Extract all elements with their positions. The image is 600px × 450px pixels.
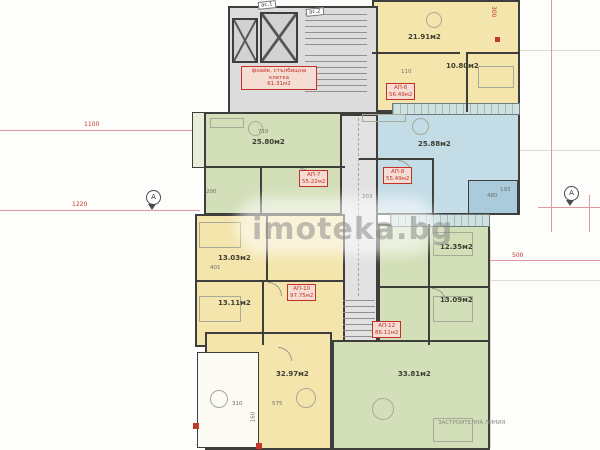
wall-segment	[204, 166, 345, 168]
guide-line	[490, 280, 600, 281]
floor-plan-canvas: 1100 1220 300 500 A A фоайе, стълбищна к…	[0, 0, 600, 450]
room-label: 13.03м2	[218, 254, 251, 262]
apartment-tag-area: 97.75м2	[290, 293, 313, 300]
elevator-shaft-1	[232, 18, 258, 63]
furniture-outline	[372, 398, 394, 420]
building-line-label: ЗАСТРОИТЕЛНА ЛИНИЯ	[438, 420, 505, 426]
dimension-label: 401	[210, 265, 221, 271]
dimension-label: 1220	[72, 201, 87, 208]
red-dimension-line	[538, 207, 600, 208]
red-dimension-line	[551, 0, 552, 232]
dimension-label: 160	[250, 412, 256, 423]
stairs-upper-flight	[305, 14, 367, 46]
axis-marker-a-right: A	[564, 186, 579, 201]
wall-segment	[262, 282, 264, 345]
apartment-tag: АП-6 56.49м2	[386, 83, 415, 100]
red-dimension-line	[589, 195, 590, 232]
furniture-outline	[296, 388, 316, 408]
elevator-cross-icon	[234, 20, 256, 61]
room-label: 25.80м2	[252, 138, 285, 146]
apartment-tag-number: АП-10	[290, 286, 313, 293]
stairs-corridor	[343, 300, 375, 338]
terrace	[197, 352, 259, 448]
furniture-outline	[199, 222, 241, 248]
apartment-tag-area: 86.11м2	[375, 330, 398, 337]
corner-mark	[495, 37, 500, 42]
apartment-tag-area: 56.49м2	[389, 92, 412, 99]
apartment-tag-area: 55.22м2	[302, 179, 325, 186]
watermark: imoteka.bg	[252, 212, 453, 247]
wall-segment	[466, 52, 520, 54]
furniture-outline	[362, 114, 406, 122]
red-dimension-line	[0, 130, 207, 131]
apartment-tag-number: АП-12	[375, 323, 398, 330]
corner-mark	[193, 423, 199, 429]
room-label: 33.81м2	[398, 370, 431, 378]
furniture-outline	[412, 118, 429, 135]
wall-segment	[428, 288, 430, 345]
apartment-tag: АП-10 97.75м2	[287, 284, 316, 301]
guide-line	[490, 230, 491, 448]
wall-segment	[432, 158, 434, 215]
dimension-label: 1100	[84, 121, 99, 128]
corner-mark	[256, 443, 262, 449]
room-label: 13.11м2	[218, 299, 251, 307]
foyer-label: фоайе, стълбищна клетка 61.31м2	[241, 66, 317, 90]
furniture-outline	[426, 12, 442, 28]
apartment-tag: АП-12 86.11м2	[372, 321, 401, 338]
dimension-label: 110	[401, 69, 412, 75]
room-label: 21.91м2	[408, 33, 441, 41]
foyer-label-line1: фоайе, стълбищна	[244, 68, 314, 75]
dimension-label: 500	[512, 252, 523, 259]
dimension-label: 575	[272, 401, 283, 407]
room-label: 10.80м2	[446, 62, 479, 70]
elevator-cross-icon	[262, 14, 296, 61]
wall-segment	[358, 158, 434, 160]
dimension-label: 710	[258, 129, 269, 135]
furniture-outline	[478, 66, 514, 88]
axis-pointer-left	[148, 204, 156, 210]
room-label: 32.97м2	[276, 370, 309, 378]
foyer-label-area: 61.31м2	[244, 81, 314, 88]
furniture-outline	[210, 390, 228, 408]
room-label: 25.88м2	[418, 140, 451, 148]
wall-segment	[372, 52, 460, 54]
dimension-label: 200	[206, 189, 217, 195]
balcony-strip-top	[392, 103, 520, 115]
red-dimension-line	[0, 210, 200, 211]
red-dimension-line	[490, 260, 600, 261]
dimension-label: 300	[490, 6, 497, 17]
axis-pointer-right	[566, 200, 574, 206]
dimension-label: 310	[232, 401, 243, 407]
guide-line	[520, 50, 600, 51]
apartment-tag-area: 55.49м2	[386, 176, 409, 183]
dimension-label: 480	[487, 193, 498, 199]
axis-marker-a-left: A	[146, 190, 161, 205]
dimension-label: 193	[500, 187, 511, 193]
apartment-tag: АП-7 55.22м2	[299, 170, 328, 187]
furniture-outline	[210, 118, 244, 128]
room-label: 13.09м2	[440, 296, 473, 304]
elevator-shaft-2	[260, 12, 298, 63]
apartment-tag: АП-8 55.49м2	[383, 167, 412, 184]
